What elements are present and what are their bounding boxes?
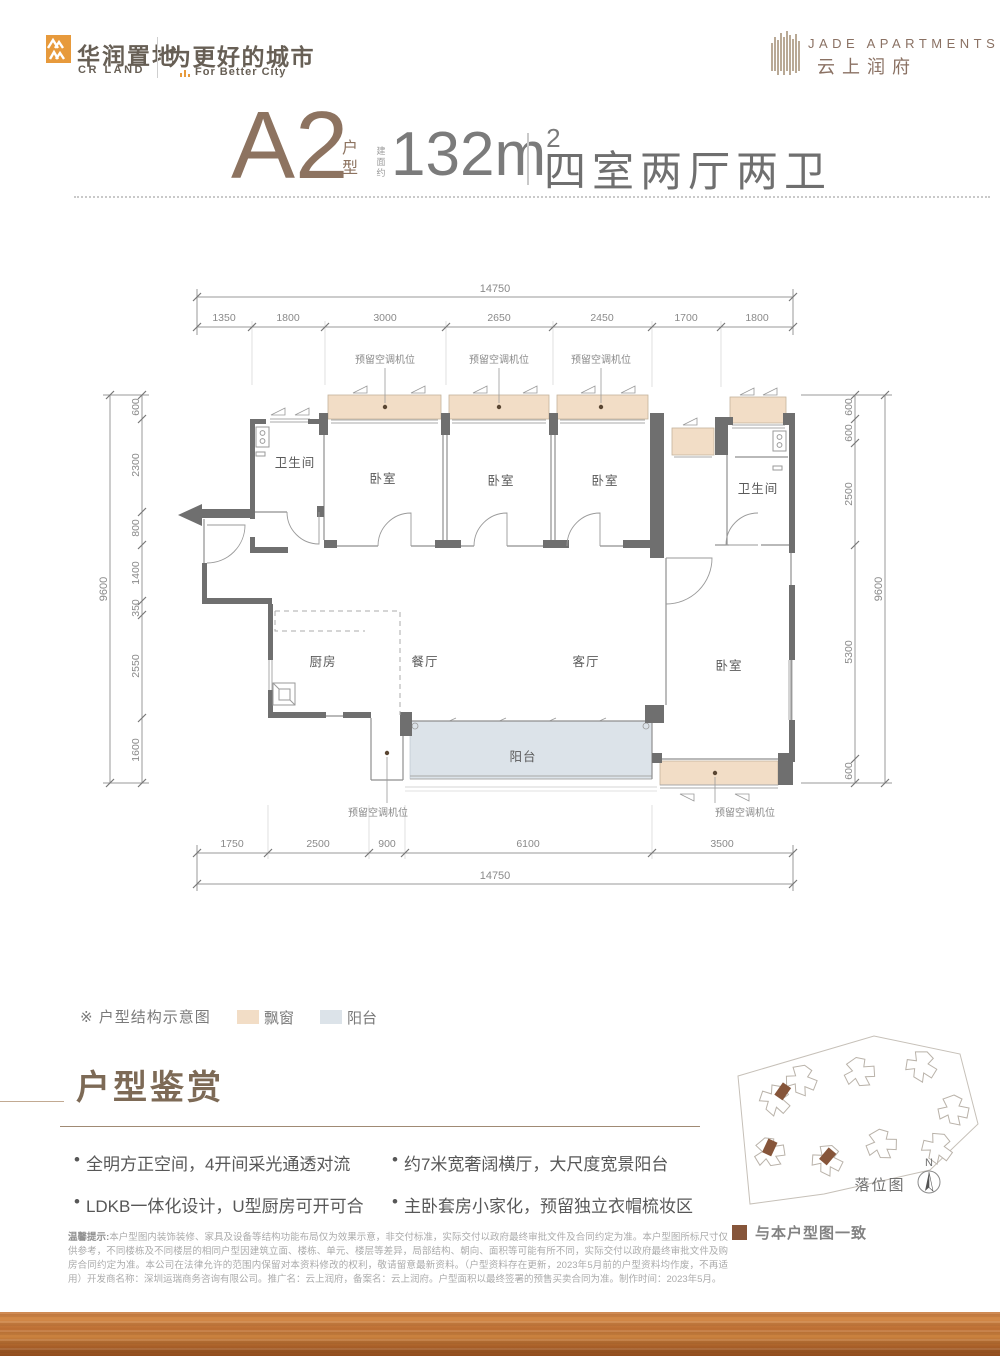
footer-gradient-bar bbox=[0, 1312, 1000, 1356]
room-label-balcony: 阳台 bbox=[509, 749, 536, 764]
ac-label: 预留空调机位 bbox=[571, 353, 631, 366]
feature-item: •LDKB一体化设计，U型厨房可开可合 bbox=[74, 1192, 390, 1217]
building-clusters bbox=[750, 1046, 969, 1178]
unit-code: A2 bbox=[231, 98, 348, 194]
section-title-appreciation: 户型鉴赏 bbox=[76, 1060, 224, 1109]
kitchen-sink-icon bbox=[273, 683, 295, 705]
dim-label: 900 bbox=[378, 838, 396, 850]
equalizer-icon bbox=[179, 67, 192, 78]
dim-label: 2500 bbox=[306, 838, 330, 850]
bullet-icon: • bbox=[74, 1192, 80, 1217]
disclaimer-text: 本户型图内装饰装修、家具及设备等结构功能布局仅为效果示意，非交付标准，实际交付以… bbox=[68, 1232, 728, 1285]
bullet-icon: • bbox=[392, 1192, 398, 1217]
dim-label: 3000 bbox=[373, 312, 397, 324]
header-divider bbox=[157, 37, 158, 78]
room-label-bedroom-2: 卧室 bbox=[487, 473, 514, 488]
dotted-separator bbox=[74, 196, 990, 198]
legend-label-balcony: 阳台 bbox=[347, 1007, 377, 1028]
feature-item: •主卧套房小家化，预留独立衣帽梳妆区 bbox=[392, 1192, 708, 1217]
area-value: 132m bbox=[391, 120, 546, 189]
dim-label: 1700 bbox=[674, 312, 698, 324]
project-name-en: JADE APARTMENTS bbox=[808, 36, 999, 51]
dim-label: 3500 bbox=[710, 838, 734, 850]
dim-label: 600 bbox=[843, 398, 855, 416]
mountain-icon bbox=[46, 35, 71, 63]
feature-column-right: •约7米宽奢阔横厅，大尺度宽景阳台 •主卧套房小家化，预留独立衣帽梳妆区 bbox=[392, 1150, 708, 1234]
highlight-swatch bbox=[732, 1225, 747, 1240]
dim-label: 2550 bbox=[130, 654, 142, 678]
floorplan-svg: 14750 1350 1800 3000 2650 2450 1700 1800… bbox=[95, 275, 915, 920]
dim-label: 9600 bbox=[873, 577, 885, 601]
legend-swatch-bay-window bbox=[237, 1010, 259, 1024]
dim-label: 1800 bbox=[276, 312, 300, 324]
dim-label: 9600 bbox=[98, 577, 110, 601]
unit-suffix: 户型 bbox=[341, 139, 359, 179]
legend-note: ※ 户型结构示意图 bbox=[80, 1006, 211, 1027]
brochure-page: 华润置地 CR LAND 为更好的城市 For Better City JADE… bbox=[0, 0, 1000, 1356]
dim-top bbox=[193, 289, 797, 387]
dim-label: 1600 bbox=[130, 738, 142, 762]
legend-swatch-balcony bbox=[320, 1010, 342, 1024]
dim-label: 14750 bbox=[480, 283, 511, 295]
feature-column-left: •全明方正空间，4开间采光通透对流 •LDKB一体化设计，U型厨房可开可合 bbox=[74, 1150, 390, 1234]
room-label-living: 客厅 bbox=[572, 654, 599, 669]
dim-label: 14750 bbox=[480, 870, 511, 882]
dim-label: 1400 bbox=[130, 561, 142, 585]
dim-label: 600 bbox=[843, 424, 855, 442]
room-label-master-bedroom: 卧室 bbox=[715, 658, 742, 673]
room-label-bedroom-3: 卧室 bbox=[591, 473, 618, 488]
area-note: 建面约 bbox=[376, 146, 386, 179]
room-label-bathroom-2: 卫生间 bbox=[738, 482, 779, 496]
feature-text: LDKB一体化设计，U型厨房可开可合 bbox=[86, 1192, 364, 1217]
ac-label: 预留空调机位 bbox=[355, 353, 415, 366]
legend-label-bay-window: 飘窗 bbox=[264, 1007, 294, 1028]
brand-name-en: CR LAND bbox=[78, 64, 145, 76]
washer-icon bbox=[773, 431, 786, 470]
disclaimer-label: 温馨提示: bbox=[68, 1232, 109, 1243]
room-label-bedroom-1: 卧室 bbox=[369, 471, 396, 486]
dim-label: 6100 bbox=[516, 838, 540, 850]
room-label-dining: 餐厅 bbox=[411, 654, 438, 669]
section-rule bbox=[60, 1126, 700, 1127]
dim-label: 800 bbox=[130, 519, 142, 537]
feature-text: 主卧套房小家化，预留独立衣帽梳妆区 bbox=[404, 1192, 693, 1217]
ac-label: 预留空调机位 bbox=[348, 806, 408, 819]
match-note-text: 与本户型图一致 bbox=[755, 1222, 867, 1243]
project-name-cn: 云上润府 bbox=[817, 53, 917, 79]
siteplan-title: 落位图 bbox=[854, 1177, 905, 1194]
feature-item: •全明方正空间，4开间采光通透对流 bbox=[74, 1150, 390, 1175]
cr-land-logo bbox=[46, 35, 71, 63]
door-arcs bbox=[207, 512, 758, 604]
compass-north-label: N bbox=[925, 1157, 933, 1169]
feature-item: •约7米宽奢阔横厅，大尺度宽景阳台 bbox=[392, 1150, 708, 1175]
unit-area: 132m2 bbox=[391, 124, 561, 186]
disclaimer: 温馨提示:本户型图内装饰装修、家具及设备等结构功能布局仅为效果示意，非交付标准，… bbox=[68, 1231, 728, 1287]
room-configuration: 四室两厅两卫 bbox=[544, 138, 832, 199]
dim-label: 600 bbox=[843, 762, 855, 780]
bullet-icon: • bbox=[74, 1150, 80, 1175]
dim-label: 2450 bbox=[590, 312, 614, 324]
dim-label: 5300 bbox=[843, 640, 855, 664]
dim-label: 1750 bbox=[220, 838, 244, 850]
section-stub-line bbox=[0, 1101, 64, 1102]
dim-label: 350 bbox=[130, 599, 142, 617]
dim-label: 1350 bbox=[212, 312, 236, 324]
dim-label: 2300 bbox=[130, 453, 142, 477]
washer-icon bbox=[256, 427, 269, 456]
dim-label: 2650 bbox=[487, 312, 511, 324]
bullet-icon: • bbox=[392, 1150, 398, 1175]
feature-text: 约7米宽奢阔横厅，大尺度宽景阳台 bbox=[404, 1150, 668, 1175]
ac-label: 预留空调机位 bbox=[715, 806, 775, 819]
brand-slogan-en: For Better City bbox=[195, 66, 286, 78]
ac-label: 预留空调机位 bbox=[469, 353, 529, 366]
dim-label: 2500 bbox=[843, 482, 855, 506]
feature-text: 全明方正空间，4开间采光通透对流 bbox=[86, 1150, 350, 1175]
title-divider bbox=[527, 133, 529, 185]
jade-apartments-logo-icon bbox=[770, 29, 802, 77]
dim-label: 600 bbox=[130, 398, 142, 416]
match-note: 与本户型图一致 bbox=[732, 1222, 867, 1243]
room-label-bathroom-1: 卫生间 bbox=[275, 456, 316, 470]
room-label-kitchen: 厨房 bbox=[309, 654, 336, 669]
siteplan-svg: 落位图 N bbox=[722, 1028, 998, 1218]
dim-label: 1800 bbox=[745, 312, 769, 324]
